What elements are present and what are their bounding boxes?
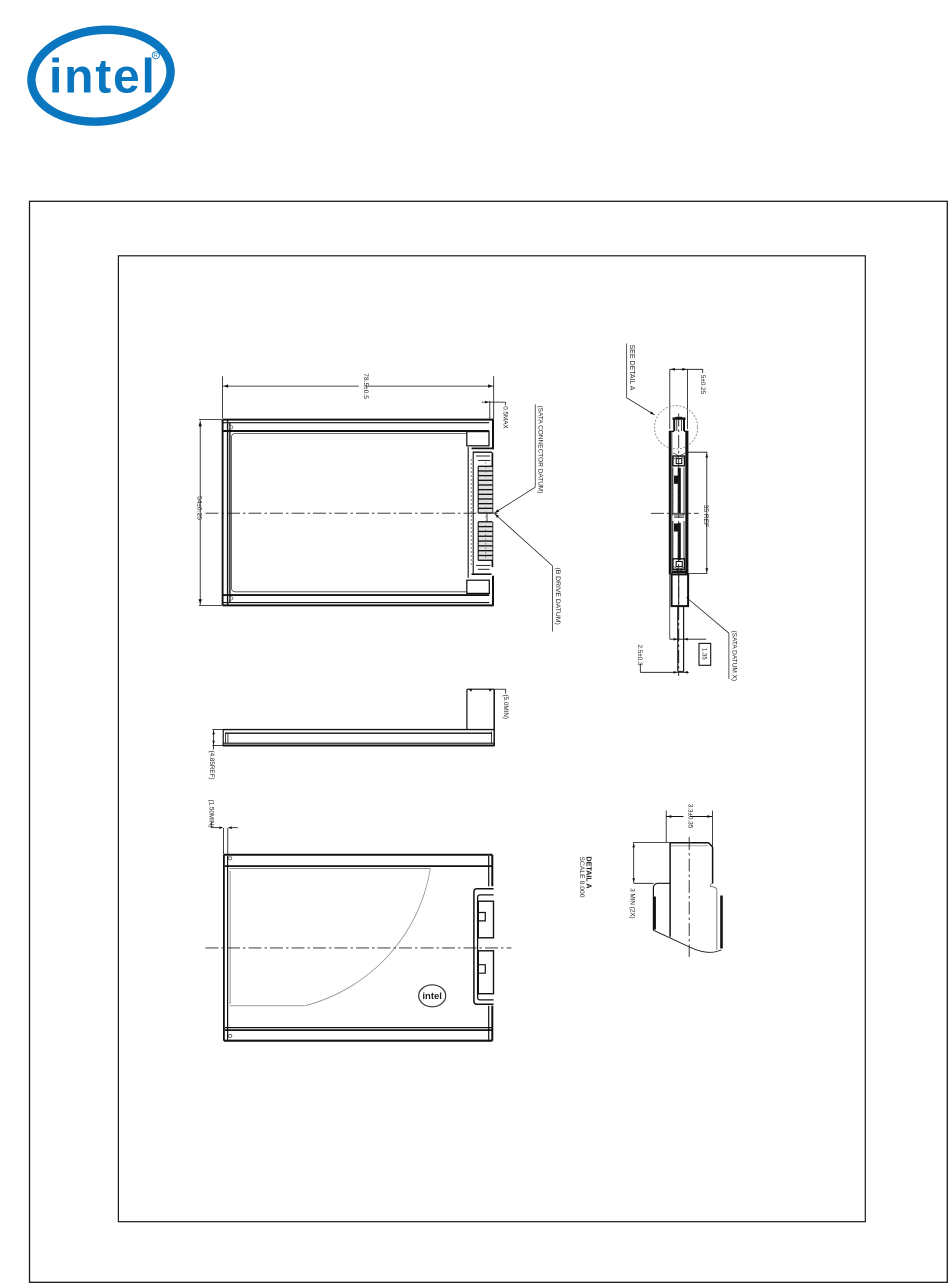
svg-text:intel: intel [49, 51, 157, 104]
svg-text:3.3±0.35: 3.3±0.35 [687, 804, 694, 829]
svg-text:78.5±0.5: 78.5±0.5 [362, 373, 369, 399]
svg-text:35 REF: 35 REF [702, 505, 709, 527]
svg-text:5±0.25: 5±0.25 [699, 375, 706, 395]
svg-text:(B DRIVE DATUM): (B DRIVE DATUM) [554, 568, 561, 625]
svg-text:2.5±0.3: 2.5±0.3 [636, 645, 643, 666]
svg-text:54±0.25: 54±0.25 [196, 496, 203, 520]
svg-text:(4.85REF): (4.85REF) [208, 751, 215, 780]
svg-text:R: R [154, 53, 158, 59]
svg-text:0.5MAX: 0.5MAX [501, 406, 508, 429]
svg-text:intel: intel [422, 991, 442, 1002]
svg-text:1.35: 1.35 [701, 648, 707, 660]
svg-text:(SATA CONNECTOR DATUM): (SATA CONNECTOR DATUM) [537, 406, 544, 494]
svg-text:SEE DETAIL A: SEE DETAIL A [628, 345, 635, 391]
svg-text:(SATA DATUM X): (SATA DATUM X) [730, 631, 737, 682]
svg-text:3 MIN (2X): 3 MIN (2X) [628, 888, 635, 918]
svg-text:SCALE 8.000: SCALE 8.000 [578, 856, 585, 897]
svg-text:(5.0MIN): (5.0MIN) [502, 695, 509, 720]
svg-text:(1.50MIN): (1.50MIN) [207, 800, 214, 828]
